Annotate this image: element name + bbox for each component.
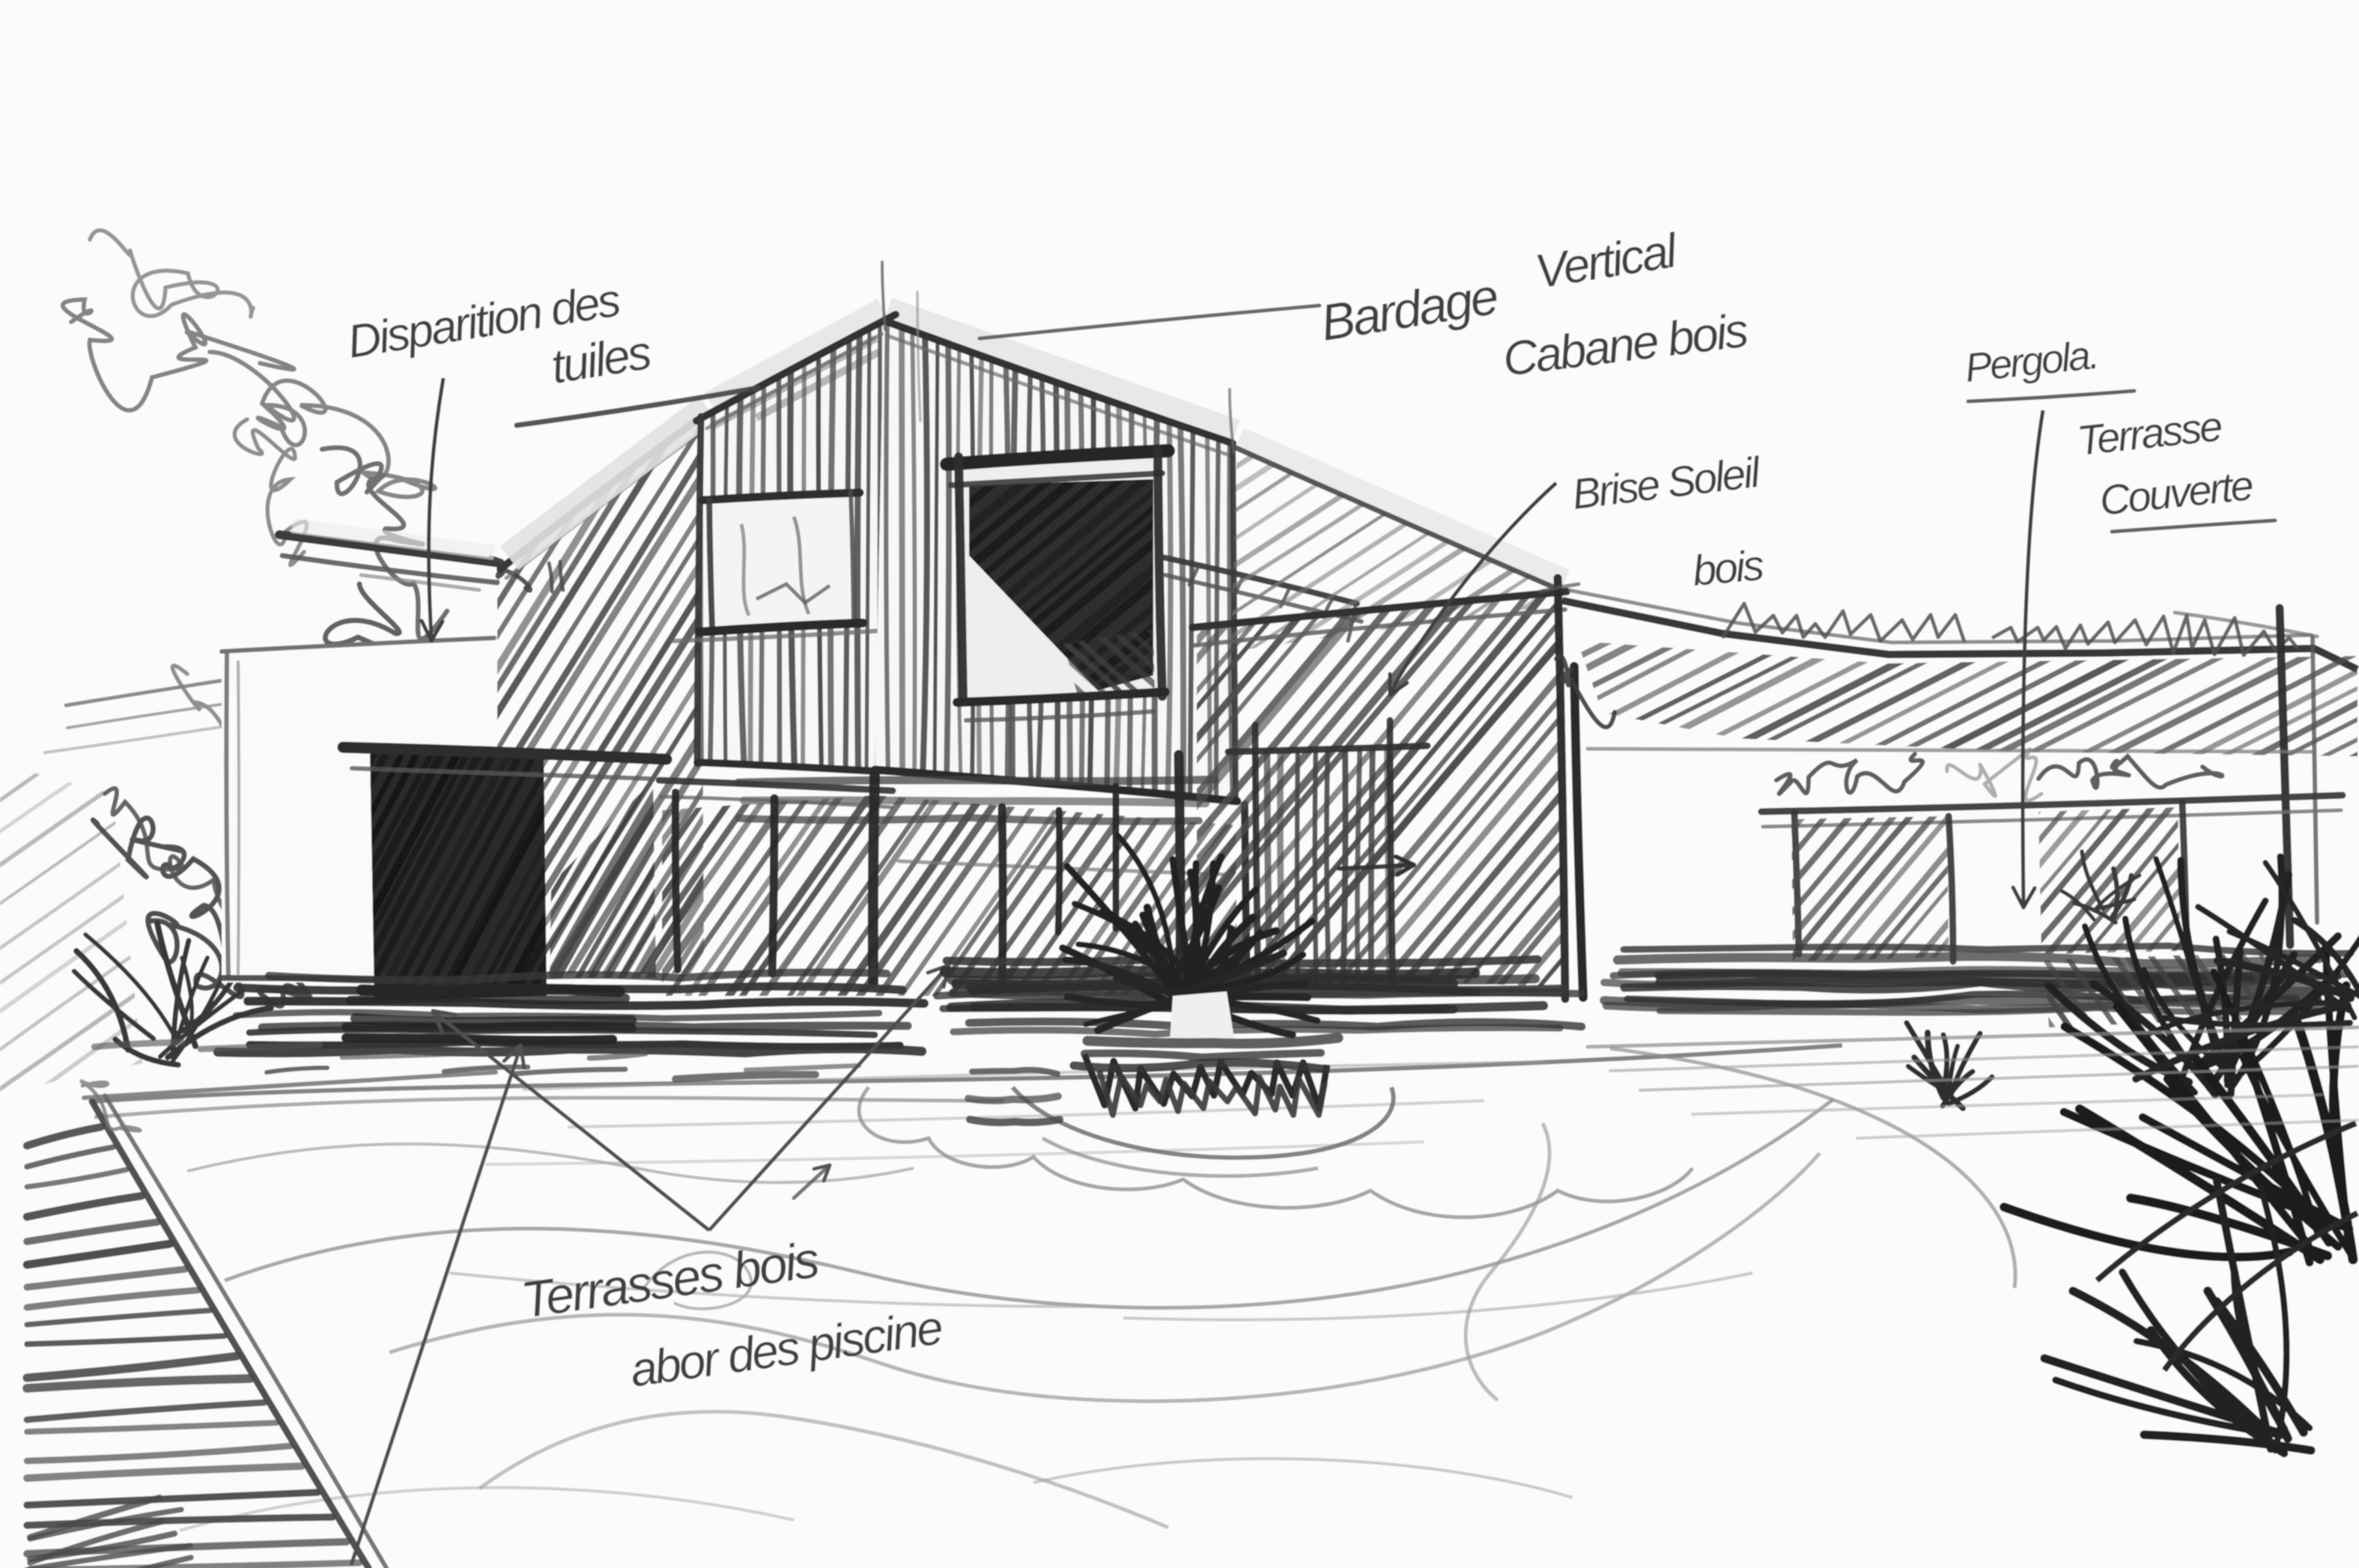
svg-text:bois: bois [1691,541,1766,595]
